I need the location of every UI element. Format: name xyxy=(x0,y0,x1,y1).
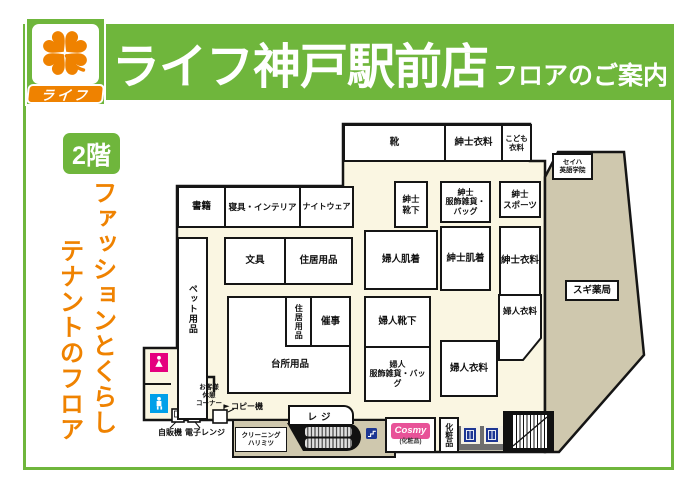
tenant-sugi-pharmacy: スギ薬局 xyxy=(565,280,619,301)
room-mens-underwear: 紳士肌着 xyxy=(440,226,491,291)
tenant-seiha-english-academy: セイハ 英語学院 xyxy=(552,153,593,180)
room-kids-clothing: こども 衣料 xyxy=(501,124,532,162)
room-cosmetics: 化粧品 xyxy=(439,417,459,453)
elevator-icon xyxy=(464,428,476,442)
rest-corner-label: お客様 休憩 コーナー xyxy=(191,383,227,409)
room-mens-accessories-bags: 紳士 服飾雑貨・ バッグ xyxy=(440,181,491,223)
tenant-cosmy-box: Cosmy (化粧品) xyxy=(385,417,436,453)
room-household-goods-2: 住居用品 xyxy=(285,296,312,347)
room-womens-clothing-2-label: 婦人衣料 xyxy=(499,298,541,324)
room-womens-accessories-bags: 婦人 服飾雑貨・バッグ xyxy=(364,346,431,402)
microwave-label: 電子レンジ xyxy=(181,427,229,438)
sugi-pharmacy-area xyxy=(545,152,644,452)
cosmy-logo: Cosmy xyxy=(391,423,430,439)
room-household-goods-1: 住居用品 xyxy=(284,237,353,285)
room-stationery: 文具 xyxy=(224,237,286,285)
room-books: 書籍 xyxy=(177,186,226,228)
room-bedding-interior: 寝具・インテリア xyxy=(224,186,301,228)
register-counter: レジ xyxy=(288,405,354,424)
floor-guide-page: ライフ神戸駅前店 フロアのご案内 ライフ 2階 ファッションとくらし テナントの… xyxy=(0,0,700,495)
room-events: 催事 xyxy=(310,296,351,347)
room-womens-clothing-1: 婦人衣料 xyxy=(440,340,498,397)
room-womens-underwear: 婦人肌着 xyxy=(364,230,438,290)
cosmy-note: (化粧品) xyxy=(400,439,422,446)
tenant-cleaning-harimitsu: クリーニング ハリミツ xyxy=(235,427,287,452)
room-nightwear: ナイトウェア xyxy=(299,186,354,228)
mens-restroom-icon xyxy=(150,394,168,413)
room-mens-clothing-top: 紳士衣料 xyxy=(444,124,503,162)
room-mens-sports: 紳士 スポーツ xyxy=(499,181,541,218)
copy-machine-label: コピー機 xyxy=(227,401,267,412)
stairs-icon xyxy=(503,411,554,452)
room-kitchen-goods-label: 台所用品 xyxy=(240,355,340,375)
room-mens-socks: 紳士 靴下 xyxy=(394,181,428,228)
room-shoes: 靴 xyxy=(343,124,446,162)
room-womens-socks: 婦人靴下 xyxy=(364,296,431,348)
elevator-icon xyxy=(486,428,498,442)
womens-restroom-icon xyxy=(150,353,168,372)
room-mens-clothing-2: 紳士衣料 xyxy=(499,226,541,296)
